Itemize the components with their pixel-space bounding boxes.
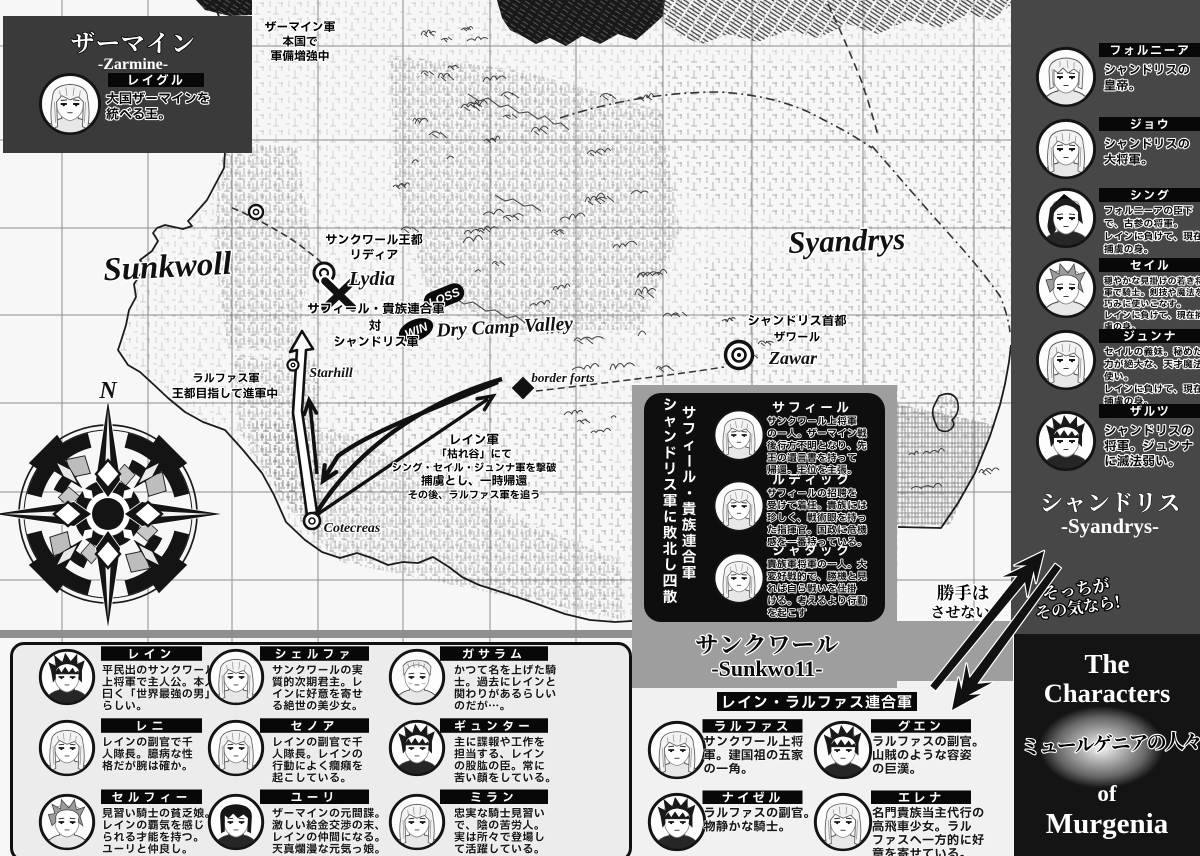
- svg-text:-Sunkwo11-: -Sunkwo11-: [711, 656, 822, 681]
- svg-text:-Syandrys-: -Syandrys-: [1061, 514, 1159, 538]
- svg-text:The: The: [1084, 649, 1129, 679]
- svg-text:Characters: Characters: [1044, 678, 1171, 708]
- svg-text:-Zarmine-: -Zarmine-: [98, 56, 168, 73]
- svg-text:Murgenia: Murgenia: [1046, 808, 1169, 840]
- svg-text:of: of: [1097, 781, 1117, 806]
